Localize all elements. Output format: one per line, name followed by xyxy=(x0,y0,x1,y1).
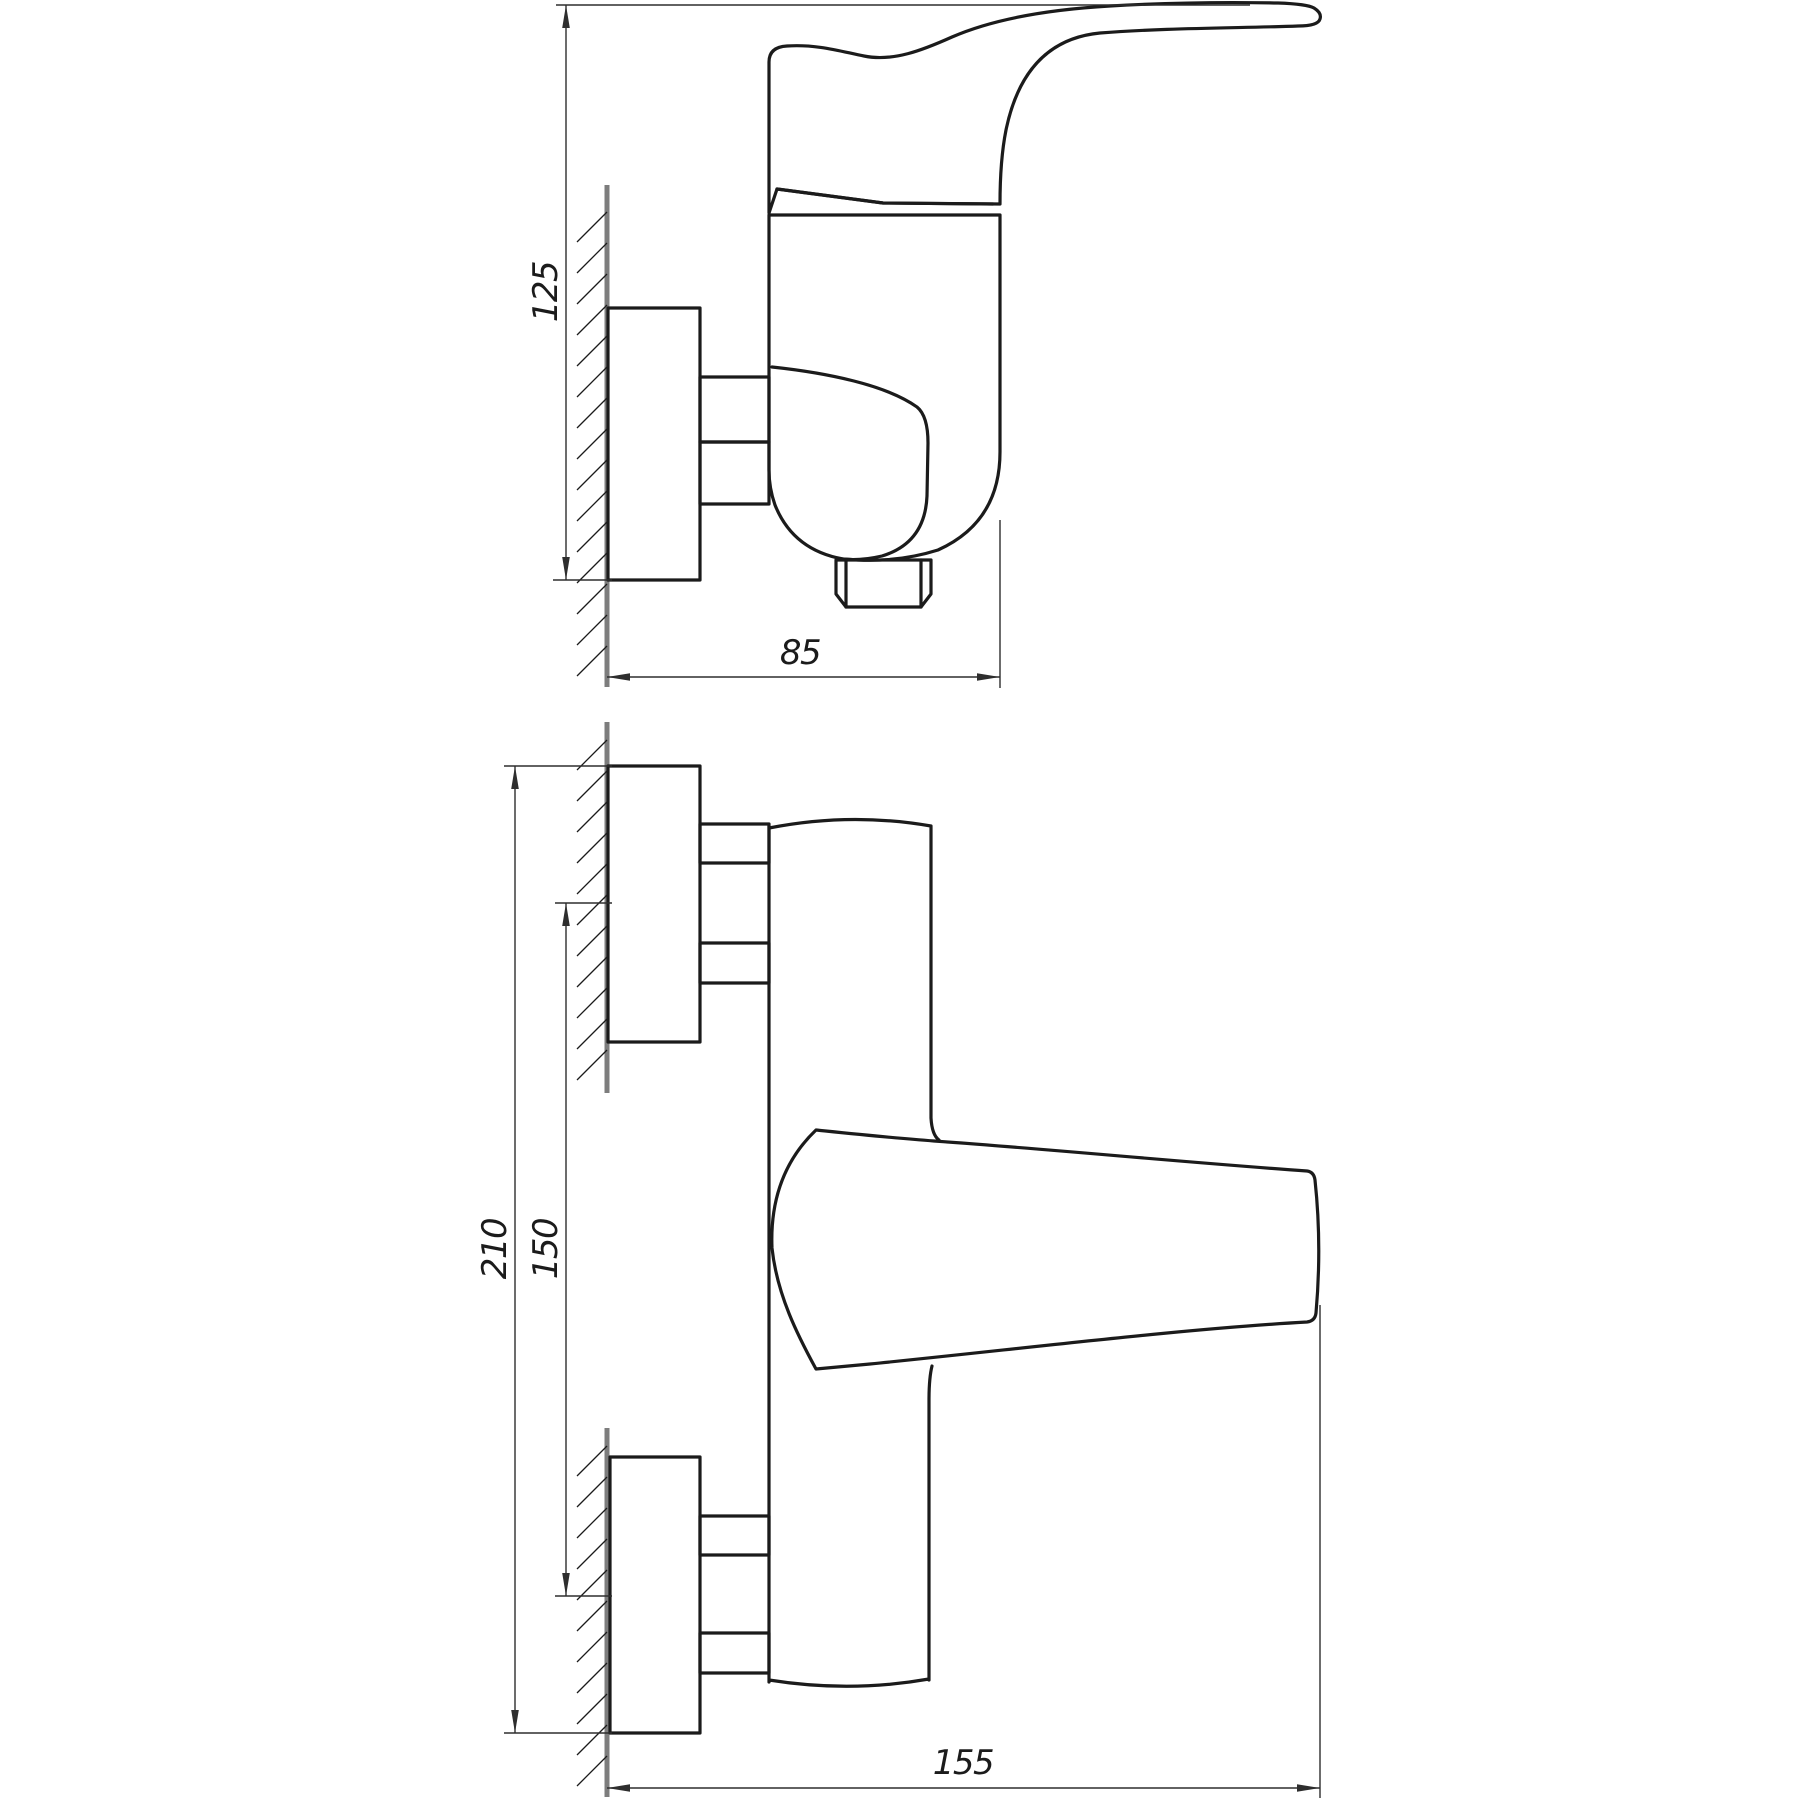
front-view xyxy=(608,766,1319,1733)
dimension-label-125: 125 xyxy=(526,262,566,322)
side-connector-upper xyxy=(700,377,769,442)
side-outlet-nut-facets xyxy=(846,560,921,607)
front-handle-lever xyxy=(772,1130,1319,1369)
technical-drawing: 125 85 210 150 155 xyxy=(0,0,1800,1800)
wall-hatching-front-upper xyxy=(577,740,607,1080)
dimension-label-155: 155 xyxy=(933,1743,993,1783)
side-handle-seam xyxy=(777,189,993,204)
drawing-canvas: 125 85 210 150 155 xyxy=(0,0,1800,1800)
side-view xyxy=(608,3,1320,607)
front-faucet-body xyxy=(769,819,939,1686)
front-inlet-union-upper-1 xyxy=(700,824,769,863)
outline-layer xyxy=(608,3,1320,1733)
side-handle-lever xyxy=(769,3,1320,213)
dimension-label-210: 210 xyxy=(475,1219,515,1279)
side-mounting-plate xyxy=(608,308,700,580)
dimension-label-150: 150 xyxy=(526,1219,566,1279)
front-mounting-plate-lower xyxy=(610,1457,700,1733)
side-connector-lower xyxy=(700,442,769,504)
side-faucet-body xyxy=(769,215,1000,560)
dimension-layer xyxy=(504,5,1320,1798)
dimension-label-85: 85 xyxy=(780,633,820,673)
extension-lines xyxy=(504,5,1320,1798)
wall-hatching-front-lower xyxy=(577,1446,607,1786)
side-outlet-nut xyxy=(836,560,931,607)
side-spout-escutcheon-curve xyxy=(772,367,928,560)
front-inlet-union-lower-1 xyxy=(700,1516,769,1555)
front-inlet-union-upper-2 xyxy=(700,943,769,983)
front-inlet-union-lower-2 xyxy=(700,1633,769,1673)
wall-hatching-side xyxy=(577,212,607,676)
wall-hatching-layer xyxy=(577,212,607,1786)
front-mounting-plate-upper xyxy=(608,766,700,1042)
